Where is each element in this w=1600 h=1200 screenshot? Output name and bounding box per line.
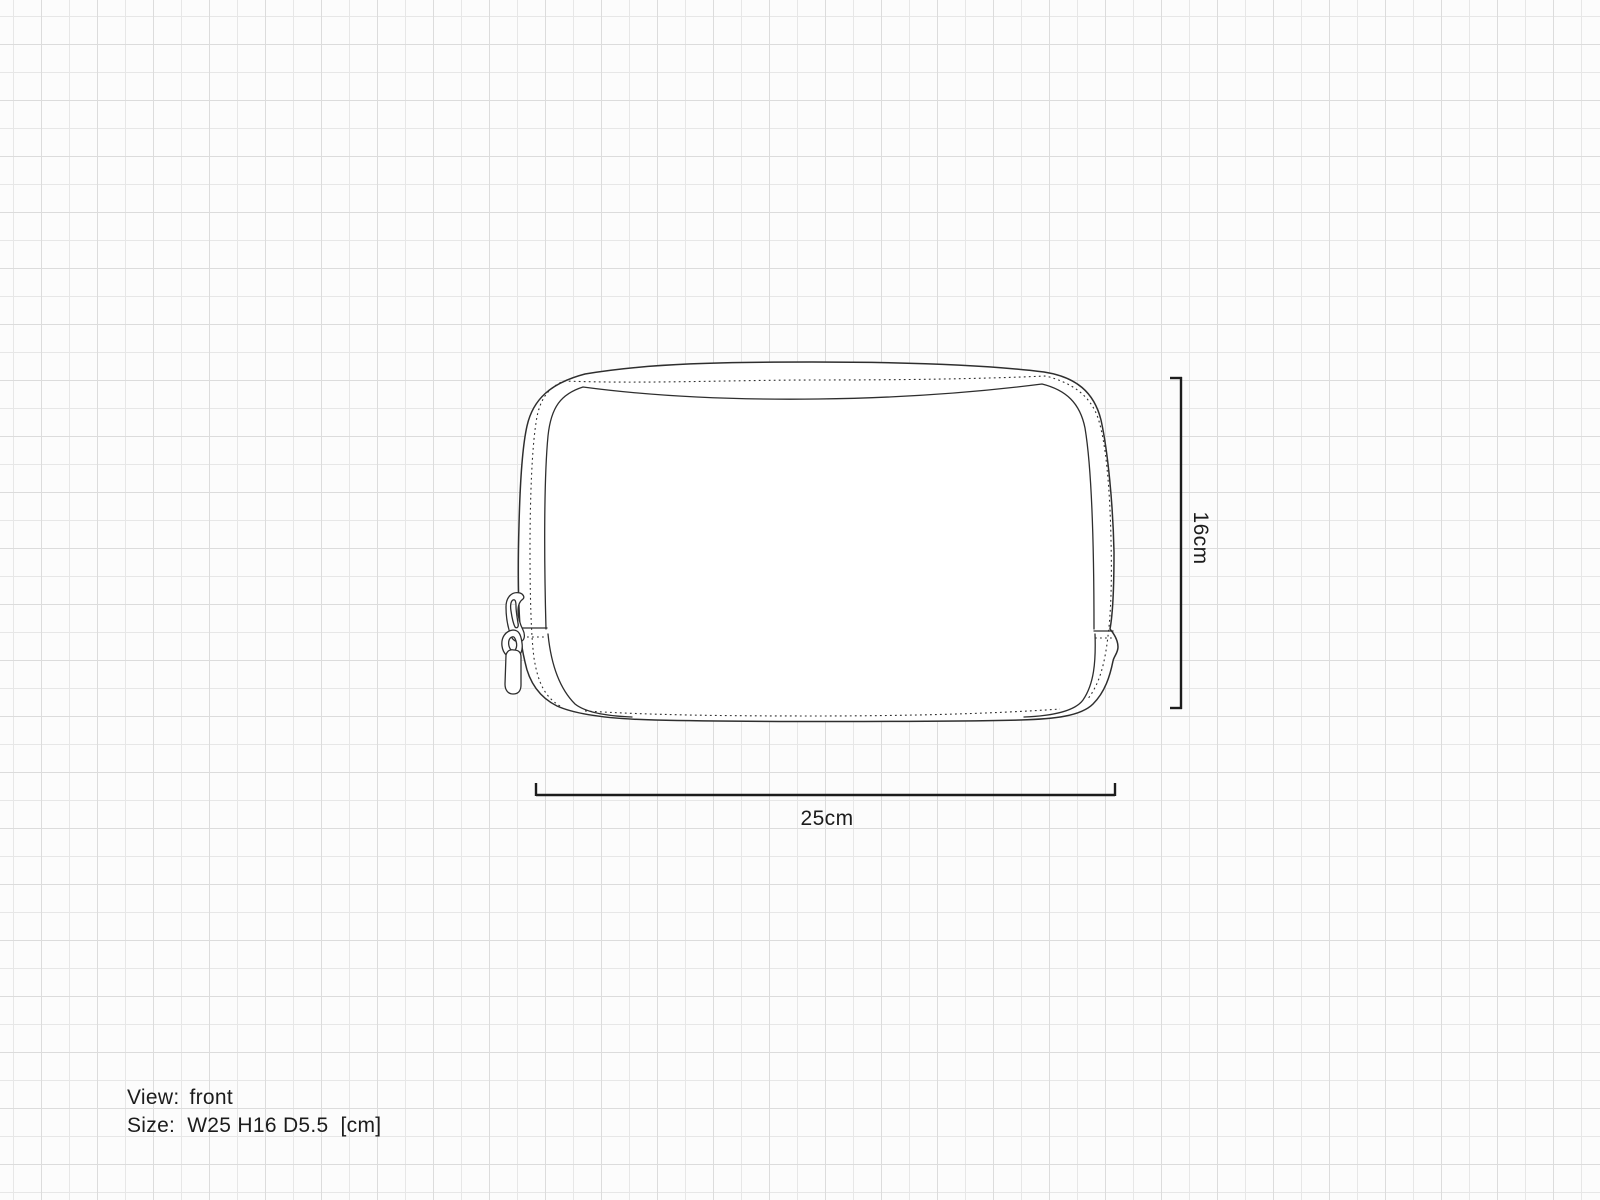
width-dimension-label: 25cm xyxy=(801,807,854,831)
view-value: front xyxy=(189,1086,233,1109)
grid-canvas: 25cm 16cm View:front Size:W25 H16 D5.5[c… xyxy=(0,0,1600,1200)
pouch-outer-outline xyxy=(518,362,1118,722)
height-dimension-label: 16cm xyxy=(1188,512,1212,565)
technical-sketch-svg xyxy=(0,0,1600,1200)
pouch-body xyxy=(518,362,1118,722)
size-line: Size:W25 H16 D5.5[cm] xyxy=(127,1112,381,1140)
width-dimension-line xyxy=(536,783,1115,796)
view-label: View: xyxy=(127,1086,179,1109)
view-line: View:front xyxy=(127,1084,381,1112)
sketch-annotation: View:front Size:W25 H16 D5.5[cm] xyxy=(127,1084,381,1140)
size-unit: [cm] xyxy=(341,1114,382,1137)
size-value: W25 H16 D5.5 xyxy=(187,1114,328,1137)
zipper-pull-tab-icon xyxy=(505,650,521,694)
height-dimension-line xyxy=(1170,377,1182,709)
size-label: Size: xyxy=(127,1114,175,1137)
